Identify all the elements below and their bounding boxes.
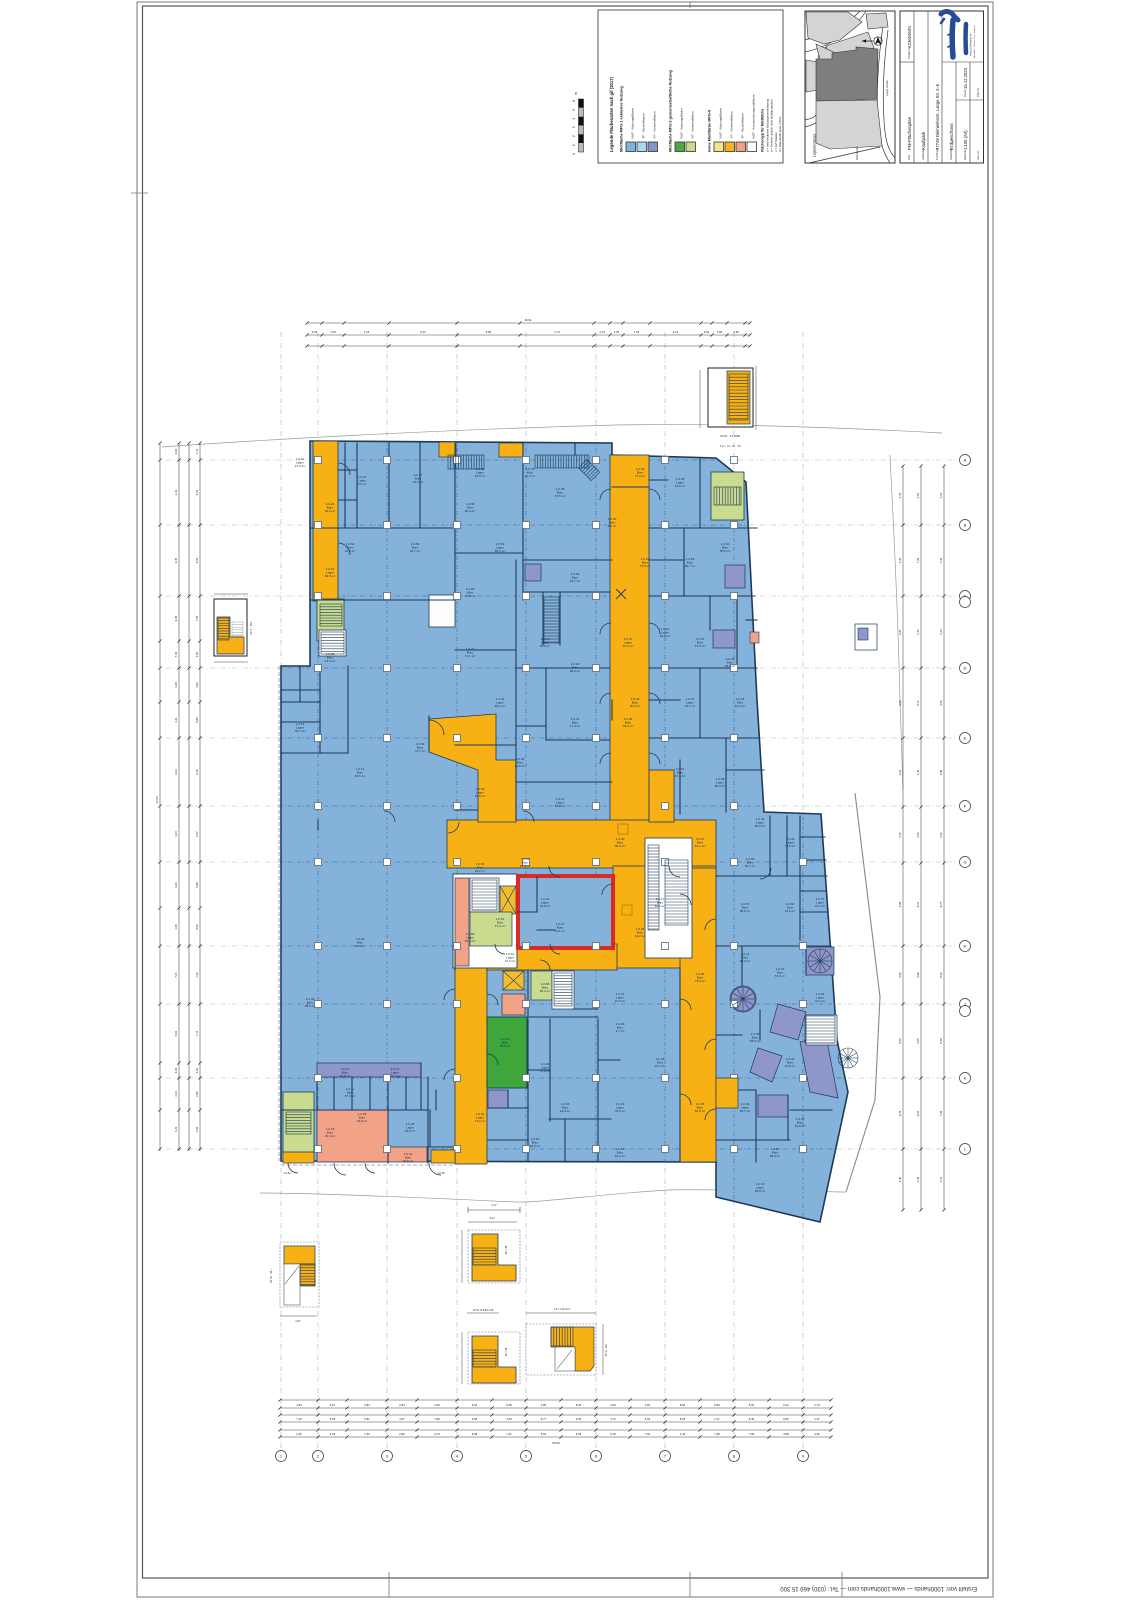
svg-text:15,9 m²: 15,9 m² [695,644,706,648]
svg-text:7,61: 7,61 [174,972,178,978]
svg-text:3,73: 3,73 [434,1432,440,1436]
svg-text:4,20: 4,20 [939,700,943,706]
svg-text:7,39: 7,39 [916,1176,920,1182]
svg-text:1,74: 1,74 [554,330,560,334]
svg-text:3,24: 3,24 [174,1091,178,1097]
svg-text:3,98: 3,98 [898,901,902,907]
svg-text:7,39: 7,39 [174,651,178,657]
svg-text:60,4 m²: 60,4 m² [465,509,476,513]
svg-text:33,5 m²: 33,5 m² [405,1129,416,1133]
svg-text:1,37: 1,37 [814,1417,820,1421]
svg-text:87,3 m²: 87,3 m² [345,1094,356,1098]
svg-text:20 St 17,5/28 1,33: 20 St 17,5/28 1,33 [473,1309,494,1312]
svg-text:53,5 m²: 53,5 m² [695,1109,706,1113]
svg-text:6,70: 6,70 [916,629,920,635]
svg-text:2,17: 2,17 [714,1417,720,1421]
svg-text:1,83: 1,83 [296,1403,302,1407]
svg-text:34,2 m²: 34,2 m² [623,724,634,728]
svg-text:49,7 m²: 49,7 m² [410,549,421,553]
svg-text:8,0 m²: 8,0 m² [608,524,617,528]
svg-text:8,99: 8,99 [714,1403,720,1407]
svg-text:32,8 m²: 32,8 m² [357,1119,368,1123]
svg-text:3,78: 3,78 [898,492,902,498]
svg-text:21,1 m²: 21,1 m² [413,480,424,484]
svg-text:2,65: 2,65 [614,330,620,334]
svg-text:13,5 m²: 13,5 m² [325,659,336,663]
svg-text:9,57: 9,57 [195,831,199,837]
svg-text:20 St · 17,5/28: 20 St · 17,5/28 [720,434,740,438]
svg-text:A: A [964,458,967,463]
svg-text:7,42: 7,42 [939,557,943,563]
svg-text:9,64: 9,64 [704,330,710,334]
svg-text:42,8 m²: 42,8 m² [795,1124,806,1128]
svg-text:70,4 m²: 70,4 m² [815,999,826,1003]
svg-text:51,1 m²: 51,1 m² [695,844,706,848]
svg-text:Erdgeschoss: Erdgeschoss [949,123,954,150]
svg-text:84,2 m²: 84,2 m² [495,704,506,708]
svg-text:www.1000hands.de: www.1000hands.de [969,33,973,56]
svg-text:86,6 m²: 86,6 m² [495,549,506,553]
svg-text:1: 1 [572,144,576,146]
svg-text:KGF - Konstruktionsgrundfläche: KGF - Konstruktionsgrundfläche [752,94,756,138]
svg-text:6,53: 6,53 [645,1417,651,1421]
svg-text:8,46: 8,46 [749,1417,755,1421]
svg-text:2,24: 2,24 [939,629,943,635]
svg-text:30,4 m²: 30,4 m² [630,704,641,708]
svg-text:8,77: 8,77 [939,901,943,907]
svg-text:18,0 m²: 18,0 m² [785,909,796,913]
svg-text:5,92: 5,92 [749,1403,755,1407]
svg-text:26,6 m²: 26,6 m² [355,774,366,778]
svg-text:80,4 m²: 80,4 m² [715,784,726,788]
svg-text:2,83: 2,83 [364,1403,370,1407]
svg-text:7,33: 7,33 [364,1432,370,1436]
svg-text:2,17 1,30 3,17: 2,17 1,30 3,17 [554,1308,571,1311]
svg-text:45,9 m²: 45,9 m² [520,864,531,868]
svg-text:59,7 m²: 59,7 m² [745,864,756,868]
svg-text:m: m [574,92,578,95]
svg-text:22,8 m²: 22,8 m² [560,1109,571,1113]
svg-text:2,99: 2,99 [916,972,920,978]
svg-text:1,19: 1,19 [364,330,370,334]
svg-text:Lange Straße: Lange Straße [885,80,889,96]
svg-text:9,27: 9,27 [330,1403,336,1407]
svg-text:21,1 m²: 21,1 m² [623,644,634,648]
svg-text:6,84: 6,84 [486,330,492,334]
svg-text:3,72: 3,72 [610,1417,616,1421]
svg-text:2,73: 2,73 [814,1403,820,1407]
svg-text:1,68: 1,68 [174,924,178,930]
svg-text:10,4 m²: 10,4 m² [525,474,536,478]
svg-text:2,80: 2,80 [399,1432,405,1436]
svg-text:37,3 m²: 37,3 m² [505,959,516,963]
svg-text:0: 0 [572,153,576,155]
svg-text:8,91: 8,91 [174,1030,178,1036]
svg-text:7,93: 7,93 [330,330,336,334]
svg-text:65,9 m²: 65,9 m² [305,1004,316,1008]
svg-text:Mietfläche MFG-1 exklusive Nut: Mietfläche MFG-1 exklusive Nutzung [620,85,624,152]
svg-text:1,82: 1,82 [195,1126,199,1132]
svg-text:7,38: 7,38 [939,1110,943,1116]
svg-text:TF - Technikfläche: TF - Technikfläche [741,113,745,138]
svg-text:9,89: 9,89 [195,882,199,888]
svg-text:24,2 m²: 24,2 m² [475,869,486,873]
svg-text:1.0.45: 1.0.45 [437,1171,445,1175]
svg-text:7,18: 7,18 [634,330,640,334]
svg-text:62,8 m²: 62,8 m² [325,574,336,578]
svg-text:6,43: 6,43 [916,769,920,775]
svg-text:8,46: 8,46 [576,1403,582,1407]
svg-text:19,7 m²: 19,7 m² [390,1074,401,1078]
svg-text:9,52: 9,52 [916,1110,920,1116]
svg-text:7,23: 7,23 [195,972,199,978]
svg-text:19,7 m²: 19,7 m² [570,579,581,583]
svg-text:3,79: 3,79 [330,1432,336,1436]
svg-text:5,81: 5,81 [364,1417,370,1421]
svg-text:3,43: 3,43 [174,769,178,775]
svg-text:6,68: 6,68 [472,1432,478,1436]
svg-text:9,7 m²: 9,7 m² [616,1029,625,1033]
svg-text:77,3 m²: 77,3 m² [635,474,646,478]
svg-text:A2300460N: A2300460N [907,26,912,48]
svg-text:7,41: 7,41 [506,1432,512,1436]
svg-text:8,0 m²: 8,0 m² [358,482,367,486]
svg-text:d = Raumhöhe unter 1,50m: d = Raumhöhe unter 1,50m [778,116,782,152]
svg-text:9,45: 9,45 [174,557,178,563]
svg-text:VF - Verkehrsfläche: VF - Verkehrsfläche [653,111,657,138]
svg-text:55,9 m²: 55,9 m² [770,1154,781,1158]
svg-text:1,82: 1,82 [717,330,723,334]
svg-text:20,4 m²: 20,4 m² [325,1134,336,1138]
svg-text:50,4 m²: 50,4 m² [540,989,551,993]
svg-text:57,3 m²: 57,3 m² [775,974,786,978]
svg-text:32,8 m²: 32,8 m² [465,594,476,598]
svg-text:2,36: 2,36 [898,557,902,563]
svg-text:Mietfläche MFG-2 gemeinschaftl: Mietfläche MFG-2 gemeinschaftliche Nutzu… [669,69,673,152]
svg-text:FM-Flächenplan: FM-Flächenplan [907,116,912,150]
svg-text:2,31: 2,31 [174,489,178,495]
svg-text:Gez.-Nr.: Gez.-Nr. [976,150,980,160]
svg-text:Anschrift · Telefon · Fax · In: Anschrift · Telefon · Fax · Internet [973,25,976,58]
svg-text:3,88: 3,88 [783,1432,789,1436]
svg-text:K: K [964,1076,967,1081]
svg-text:4,57: 4,57 [399,1417,405,1421]
svg-text:7,54: 7,54 [645,1432,651,1436]
svg-text:39,7 m²: 39,7 m² [295,729,306,733]
svg-text:73,5 m²: 73,5 m² [695,979,706,983]
svg-text:20 x 18: 20 x 18 [504,1245,508,1254]
svg-text:5,53: 5,53 [541,1432,547,1436]
svg-text:68,0 m²: 68,0 m² [755,1189,766,1193]
svg-text:4,18: 4,18 [174,1067,178,1073]
svg-text:2,17: 2,17 [491,1203,497,1207]
svg-text:20 St · 18+: 20 St · 18+ [604,1343,608,1356]
svg-text:3,23: 3,23 [898,769,902,775]
svg-text:48,0 m²: 48,0 m² [530,1144,541,1148]
svg-text:1.0.44: 1.0.44 [283,1171,291,1175]
svg-text:4,17: 4,17 [489,1216,495,1220]
svg-text:9,22: 9,22 [420,330,426,334]
svg-text:5,77: 5,77 [541,1417,547,1421]
svg-text:Kaufpark: Kaufpark [921,131,926,150]
svg-text:63,5 m²: 63,5 m² [500,1044,511,1048]
svg-text:75,9 m²: 75,9 m² [640,564,651,568]
svg-text:1,36: 1,36 [916,832,920,838]
svg-text:5: 5 [572,109,576,111]
svg-text:8,71: 8,71 [916,700,920,706]
svg-text:6,63: 6,63 [576,1432,582,1436]
svg-text:6,26: 6,26 [174,882,178,888]
svg-text:69,7 m²: 69,7 m² [685,564,696,568]
svg-text:NUF - Nutzungsfläche: NUF - Nutzungsfläche [719,108,723,139]
svg-text:NUF - Nutzungsfläche: NUF - Nutzungsfläche [631,108,635,139]
svg-text:1,23: 1,23 [174,1126,178,1132]
svg-text:Flächentyp für Mietfläche: Flächentyp für Mietfläche [761,109,765,152]
svg-text:83,5 m²: 83,5 m² [750,1039,761,1043]
svg-text:20 x 18: 20 x 18 [504,1347,508,1356]
svg-text:5,92: 5,92 [898,972,902,978]
svg-text:47,3 m²: 47,3 m² [495,924,506,928]
svg-text:G: G [963,860,966,865]
svg-text:55,60: 55,60 [552,1441,560,1445]
svg-text:1,07: 1,07 [295,1319,301,1323]
svg-text:6,48: 6,48 [506,1403,512,1407]
svg-text:8,84: 8,84 [680,1403,686,1407]
svg-text:49,91: 49,91 [525,318,532,322]
svg-text:8,85: 8,85 [195,717,199,723]
svg-text:17,3 m²: 17,3 m² [570,724,581,728]
svg-text:2,82: 2,82 [434,1403,440,1407]
svg-text:6,56: 6,56 [939,832,943,838]
svg-text:6: 6 [572,100,576,102]
svg-text:3,65: 3,65 [195,557,199,563]
svg-text:27749 Delmenhorst, Lange Str.: 27749 Delmenhorst, Lange Str. 4–6 [935,83,940,150]
svg-text:15.12.2023: 15.12.2023 [963,67,968,89]
svg-text:61,1 m²: 61,1 m² [615,1154,626,1158]
svg-text:31,1 m²: 31,1 m² [815,904,826,908]
svg-text:3,20: 3,20 [195,651,199,657]
svg-text:4,40: 4,40 [898,1176,902,1182]
svg-text:7,59: 7,59 [749,1432,755,1436]
svg-text:2,38: 2,38 [733,330,739,334]
svg-text:17,04: 17,04 [155,796,159,804]
svg-text:7,17: 7,17 [195,1030,199,1036]
svg-text:Lageplanskizze: Lageplanskizze [813,134,817,157]
svg-text:79,7 m²: 79,7 m² [415,749,426,753]
svg-text:4,11: 4,11 [174,717,178,723]
svg-text:9,79: 9,79 [898,1110,902,1116]
svg-text:25,9 m²: 25,9 m² [555,804,566,808]
svg-text:T xx · xx / xx · T2: T xx · xx / xx · T2 [719,444,741,448]
svg-text:20 T · 18+: 20 T · 18+ [249,621,253,635]
svg-text:2,25: 2,25 [576,1417,582,1421]
svg-text:47,3 m²: 47,3 m² [295,464,306,468]
svg-text:VF - Verkehrsfläche: VF - Verkehrsfläche [691,111,695,138]
svg-text:keine Mietfläche MFG-0: keine Mietfläche MFG-0 [708,110,712,152]
svg-text:9,45: 9,45 [174,615,178,621]
svg-text:27,3 m²: 27,3 m² [615,999,626,1003]
svg-text:4,94: 4,94 [195,682,199,688]
svg-text:78,0 m²: 78,0 m² [540,904,551,908]
svg-text:H: H [964,944,967,949]
svg-text:72,8 m²: 72,8 m² [785,844,796,848]
svg-text:8,43: 8,43 [939,972,943,978]
svg-text:VF - Verkehrsfläche: VF - Verkehrsfläche [730,111,734,138]
svg-text:3,76: 3,76 [939,1176,943,1182]
svg-text:2,84: 2,84 [399,1403,405,1407]
svg-text:6,87: 6,87 [898,629,902,635]
svg-text:16,6 m²: 16,6 m² [785,1064,796,1068]
svg-text:23,5 m²: 23,5 m² [475,474,486,478]
svg-text:3,76: 3,76 [898,832,902,838]
svg-text:Erstellt von: 1000hands — ww: Erstellt von: 1000hands — www.1000hands.… [780,1585,977,1591]
svg-text:3,29: 3,29 [174,682,178,688]
svg-text:2,81: 2,81 [645,1403,651,1407]
svg-text:82,8 m²: 82,8 m² [660,634,671,638]
svg-text:34,2 m²: 34,2 m² [325,509,336,513]
svg-text:54,2 m²: 54,2 m² [735,704,746,708]
svg-text:67,3 m²: 67,3 m² [675,774,686,778]
svg-text:4: 4 [572,117,576,119]
svg-text:71,1 m²: 71,1 m² [465,654,476,658]
svg-text:40,4 m²: 40,4 m² [655,1064,666,1068]
svg-text:36,6 m²: 36,6 m² [345,549,356,553]
svg-text:7,99: 7,99 [714,1432,720,1436]
svg-text:43,5 m²: 43,5 m² [675,484,686,488]
svg-text:5,63: 5,63 [330,1417,336,1421]
svg-text:85,9 m²: 85,9 m² [740,909,751,913]
svg-text:4,21: 4,21 [673,330,679,334]
svg-text:28,0 m²: 28,0 m² [725,664,736,668]
svg-text:4,26: 4,26 [814,1432,820,1436]
svg-text:Datum: Datum [963,89,967,97]
svg-text:7,29: 7,29 [916,557,920,563]
svg-text:7,73: 7,73 [195,448,199,454]
svg-text:41,1 m²: 41,1 m² [685,704,696,708]
svg-text:4,60: 4,60 [174,448,178,454]
svg-text:2,83: 2,83 [541,1403,547,1407]
svg-text:Plan: Plan [907,154,911,160]
svg-text:TF - Technikfläche: TF - Technikfläche [642,113,646,138]
svg-text:56,6 m²: 56,6 m² [720,549,731,553]
svg-text:11,1 m²: 11,1 m² [555,929,565,933]
svg-text:3,53: 3,53 [610,1403,616,1407]
svg-text:5,10: 5,10 [195,769,199,775]
svg-text:9,13: 9,13 [916,901,920,907]
svg-text:Legende Flächenarten nach gif: Legende Flächenarten nach gif (2017) [609,76,614,152]
svg-text:86,6 m²: 86,6 m² [340,1074,351,1078]
svg-text:6,29: 6,29 [312,330,318,334]
svg-text:35,9 m²: 35,9 m² [615,1109,626,1113]
svg-text:D: D [964,666,967,671]
svg-text:1,89: 1,89 [434,1417,440,1421]
svg-text:44,2 m²: 44,2 m² [740,959,751,963]
svg-text:76,6 m²: 76,6 m² [540,1069,551,1073]
svg-text:2,56: 2,56 [916,492,920,498]
svg-text:9,64: 9,64 [472,1403,478,1407]
svg-text:4,14: 4,14 [599,330,605,334]
svg-text:3,15: 3,15 [296,1432,302,1436]
svg-text:3,55: 3,55 [916,1038,920,1044]
svg-text:6,13: 6,13 [939,492,943,498]
svg-text:2,44: 2,44 [680,1432,686,1436]
svg-text:E: E [964,736,967,741]
svg-text:9,56: 9,56 [898,1038,902,1044]
svg-text:45,9 m²: 45,9 m² [540,644,551,648]
svg-text:5,98: 5,98 [939,769,943,775]
svg-text:46,6 m²: 46,6 m² [403,1159,414,1163]
svg-text:64,2 m²: 64,2 m² [755,824,766,828]
svg-text:6,69: 6,69 [472,1417,478,1421]
svg-text:20 St · 18+: 20 St · 18+ [269,1269,273,1283]
svg-text:52,8 m²: 52,8 m² [355,944,366,948]
svg-text:8,69: 8,69 [898,700,902,706]
svg-text:8,55: 8,55 [783,1417,789,1421]
svg-text:74,2 m²: 74,2 m² [475,1119,486,1123]
svg-text:2: 2 [572,135,576,137]
svg-text:8,61: 8,61 [195,489,199,495]
svg-text:12,8 m²: 12,8 m² [515,764,526,768]
svg-text:60,4 m²: 60,4 m² [465,939,476,943]
svg-text:8,38: 8,38 [939,1038,943,1044]
svg-text:9,60: 9,60 [195,924,199,930]
svg-text:66,6 m²: 66,6 m² [475,794,486,798]
svg-text:8,18: 8,18 [680,1417,686,1421]
svg-text:4,66: 4,66 [195,1067,199,1073]
svg-text:6,86: 6,86 [195,1091,199,1097]
svg-text:Plan-Nr.: Plan-Nr. [976,87,980,97]
svg-text:NUF - Nutzungsfläche: NUF - Nutzungsfläche [680,108,684,139]
svg-text:73,5 m²: 73,5 m² [555,494,566,498]
svg-text:7,16: 7,16 [296,1417,302,1421]
svg-text:3,63: 3,63 [174,831,178,837]
svg-text:38,0 m²: 38,0 m² [615,844,626,848]
svg-text:3: 3 [572,126,576,128]
svg-text:1:100 (A0): 1:100 (A0) [963,130,968,150]
svg-text:6,12: 6,12 [783,1403,789,1407]
svg-text:5,15: 5,15 [610,1432,616,1436]
svg-text:4,33: 4,33 [506,1417,512,1421]
svg-text:58,0 m²: 58,0 m² [570,669,581,673]
svg-text:81,1 m²: 81,1 m² [655,904,666,908]
svg-text:7,55: 7,55 [195,615,199,621]
svg-text:Marktstraße: Marktstraße [855,146,859,160]
svg-text:B: B [964,523,967,528]
svg-text:29,7 m²: 29,7 m² [740,1109,751,1113]
svg-text:14,2 m²: 14,2 m² [635,934,646,938]
